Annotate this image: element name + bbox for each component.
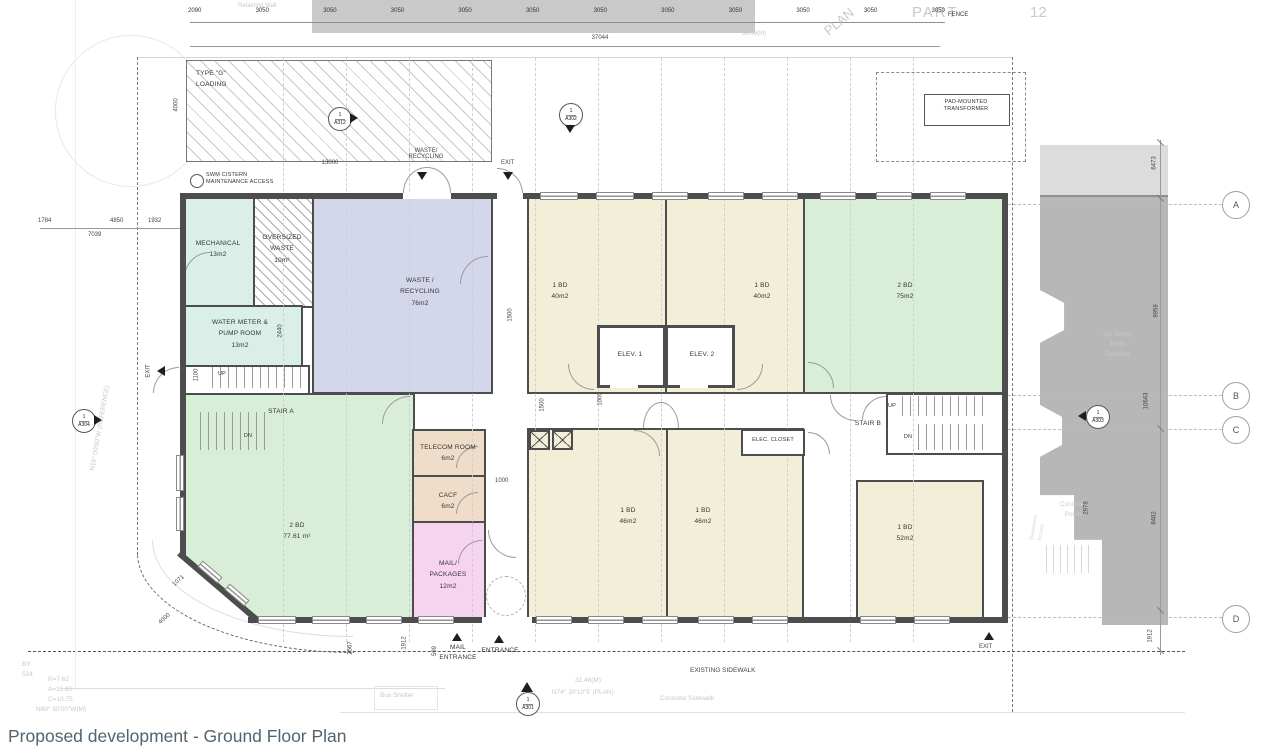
window [876, 192, 912, 200]
label-2bd77: 2 BD 77.61 m² [252, 520, 342, 543]
label-oversized: OVERSIZED WASTE 10m² [251, 232, 313, 266]
window [860, 616, 896, 624]
window [176, 455, 184, 491]
dim: 3050 [594, 8, 607, 14]
dim-bottom-0: 2567 [348, 641, 354, 654]
dim-chamfer-1: 4000 [158, 612, 172, 625]
grid-line [409, 58, 410, 642]
exit-label-bottom: EXIT [979, 644, 992, 650]
dim-corr-2: 1000 [598, 392, 604, 405]
dim: 2090 [188, 8, 201, 14]
dim: 3050 [729, 8, 742, 14]
label-2bd75: 2 BD 75m2 [860, 280, 950, 303]
stair-b-dn: DN [900, 434, 916, 441]
section-marker-a304: 1 A304 [72, 409, 96, 433]
waste-door-label: WASTE/ RECYCLING [398, 148, 454, 160]
dim: 3050 [323, 8, 336, 14]
grid-line [535, 58, 536, 642]
marker-number: 1 [1093, 410, 1104, 418]
survey-bearing-curve: N60° 50'00"W(M) [36, 705, 86, 715]
window [312, 616, 350, 624]
window [820, 192, 856, 200]
dryer-icon [552, 430, 573, 450]
exit-label-left: EXIT [146, 364, 152, 377]
dim-right-1: 9959 [1154, 304, 1160, 317]
grid-bubble-a: A [1222, 191, 1250, 219]
dim-left-3: 7039 [88, 232, 101, 238]
section-arrow-icon [350, 113, 358, 123]
door-arc [427, 167, 451, 193]
dim-right-3: 8482 [1152, 511, 1158, 524]
marker-sheet: A301 [522, 705, 534, 712]
section-arrow-icon [94, 415, 102, 425]
survey-dist-top: 39.09(M) [742, 30, 766, 39]
stair-a-dn: DN [240, 433, 256, 440]
window [258, 616, 296, 624]
property-line-bottom [28, 651, 1185, 652]
entrance-arrow-icon [494, 635, 504, 643]
dim-right-4: 2978 [1084, 501, 1090, 514]
transformer-label: PAD-MOUNTED TRANSFORMER [924, 99, 1008, 113]
dim-stair-w: 1100 [193, 369, 199, 382]
grid-bubble-b: B [1222, 382, 1250, 410]
grid-leader-d [1008, 617, 1222, 618]
exit-arrow-icon [157, 366, 165, 376]
elevator2-door [680, 383, 708, 388]
section-marker-a303: 1 A303 [1086, 405, 1110, 429]
grid-line [787, 58, 788, 642]
dim-bottom-1: 1912 [402, 636, 408, 649]
dim-pump: 2440 [278, 324, 284, 337]
grid-leader-a [1008, 204, 1222, 205]
retaining-wall-band [312, 0, 755, 33]
waste-door-arrow-icon [417, 172, 427, 180]
section-arrow-icon [521, 682, 533, 692]
window [540, 192, 578, 200]
faint-line-1 [75, 0, 76, 690]
existing-building-light [1040, 145, 1168, 195]
window [366, 616, 402, 624]
dim-left-2: 1932 [148, 218, 161, 224]
grid-letter: C [1233, 425, 1240, 435]
marker-number: 1 [335, 112, 346, 120]
marker-number: 1 [79, 414, 90, 422]
label-1bd40a: 1 BD 40m2 [515, 280, 605, 303]
stair-b-treads-lower [918, 424, 984, 450]
section-arrow-icon [1078, 411, 1086, 421]
exit-arrow-icon [984, 632, 994, 640]
mail-entrance-arrow-icon [452, 633, 462, 641]
window [914, 616, 950, 624]
label-1bd52: 1 BD 52m2 [860, 522, 950, 545]
survey-lot12: 12 [1030, 2, 1047, 25]
property-line-left [137, 57, 138, 555]
window [762, 192, 798, 200]
dim-right-0: 6473 [1152, 156, 1158, 169]
elevator-divider-wall [663, 325, 668, 388]
existing-sidewalk-label: EXISTING SIDEWALK [690, 667, 756, 674]
site-line-top [137, 57, 1012, 58]
exit-arrow-icon [503, 172, 513, 180]
dim-loading-height: 4000 [174, 98, 180, 111]
window [588, 616, 624, 624]
grid-letter: A [1233, 200, 1239, 210]
porch-label: Concrete Porch [1048, 500, 1098, 520]
floor-plan-canvas: TYPE "G" LOADING 13000 4000 PAD-MOUNTED … [0, 0, 1280, 756]
grid-leader-b [1008, 395, 1222, 396]
door-arc [403, 167, 427, 193]
window [698, 616, 734, 624]
swm-cistern-label: SWM CISTERN MAINTENANCE ACCESS [206, 172, 296, 186]
dim-left-1: 4850 [110, 218, 123, 224]
survey-concrete-sidewalk: Concrete Sidewalk [660, 694, 714, 704]
stair-a-treads-lower [200, 412, 266, 450]
dwelling-label: 2½ Storey Brick Dwelling [1088, 330, 1148, 359]
elevator2-label: ELEV. 2 [672, 349, 732, 360]
window [652, 192, 688, 200]
dim-right-2: 10643 [1143, 393, 1149, 410]
window [708, 192, 744, 200]
marker-number: 1 [523, 697, 534, 705]
entrance-label: ENTRANCE [470, 645, 530, 656]
survey-curve-data: R=7.62 A=11.93 C=10.75 [48, 675, 73, 704]
section-marker-a312: 1 A312 [328, 107, 352, 131]
survey-by-lot: BY 524 [22, 660, 33, 680]
section-marker-a301: 1 A301 [516, 692, 540, 716]
section-marker-a302: 1 A302 [559, 103, 583, 127]
door-gap-waste [403, 193, 451, 199]
grid-leader-c [1008, 429, 1222, 430]
dim-corr-3: 1000 [495, 478, 508, 484]
basement-access-stairs [1046, 545, 1090, 573]
stair-b-treads-upper [902, 396, 988, 416]
elec-closet-label: ELEC. CLOSET [741, 437, 805, 444]
dim-line-right [1160, 140, 1161, 655]
dim-left-0: 1784 [38, 218, 51, 224]
elevator1-door [610, 383, 638, 388]
label-1bd40b: 1 BD 40m2 [717, 280, 807, 303]
grid-line [850, 58, 851, 642]
basement-access-label: Basement Access [1028, 515, 1049, 542]
stair-a-up: UP [214, 371, 230, 378]
page-title: Proposed development - Ground Floor Plan [8, 726, 347, 747]
exit-label-top: EXIT [501, 160, 514, 166]
loading-zone-label: TYPE "G" LOADING [196, 68, 256, 91]
dim-row-top: 2090 3050 3050 3050 3050 3050 3050 3050 … [188, 8, 945, 14]
grid-letter: D [1233, 614, 1240, 624]
dim: 3050 [391, 8, 404, 14]
section-arrow-icon [565, 125, 575, 133]
dim-loading-width: 13000 [300, 160, 360, 166]
stair-b-up: UP [884, 403, 900, 410]
window [930, 192, 966, 200]
dim: 3050 [661, 8, 674, 14]
dim-corr-1: 1500 [540, 398, 546, 411]
marker-sheet: A304 [78, 422, 90, 429]
label-cacf: CACF 6m2 [403, 490, 493, 513]
dim: 3050 [458, 8, 471, 14]
door-gap-entrance [482, 617, 532, 623]
stair-b-label: STAIR B [846, 418, 890, 429]
window [752, 616, 788, 624]
label-mechanical: MECHANICAL 13m2 [182, 238, 254, 261]
grid-bubble-d: D [1222, 605, 1250, 633]
elevator1-label: ELEV. 1 [600, 349, 660, 360]
label-water-meter: WATER METER & PUMP ROOM 13m2 [190, 317, 290, 351]
stair-a-label: STAIR A [258, 406, 304, 417]
marker-number: 1 [566, 108, 577, 116]
dim: 3050 [932, 8, 945, 14]
label-mail: MAIL/ PACKAGES 12m2 [403, 558, 493, 592]
grid-line [913, 58, 914, 642]
dim-right-5: 1912 [1148, 629, 1154, 642]
dim: 3050 [526, 8, 539, 14]
survey-dist-bottom: 31.46(M) [575, 676, 601, 686]
dim-fence: FENCE [948, 12, 968, 18]
swm-cistern-icon [190, 174, 204, 188]
label-1bd46b: 1 BD 46m2 [658, 505, 748, 528]
grid-bubble-c: C [1222, 416, 1250, 444]
dim-line-total [190, 46, 940, 47]
dim-total: 37044 [560, 35, 640, 41]
window [176, 497, 184, 531]
door-gap-exit-top [497, 193, 523, 199]
label-waste-recycling: WASTE / RECYCLING 76m2 [375, 275, 465, 309]
dim-line-left [40, 228, 180, 229]
wall-right [1002, 193, 1008, 623]
property-line-right [1012, 57, 1013, 712]
survey-bus-shelter: Bus Shelter [380, 691, 414, 701]
dim: 3050 [864, 8, 877, 14]
marker-sheet: A303 [1092, 418, 1104, 425]
room-1bd52 [856, 480, 984, 620]
marker-sheet: A302 [565, 116, 577, 123]
dim-bottom-2: 599 [432, 646, 438, 656]
label-telecom: TELECOM ROOM 6m2 [403, 442, 493, 465]
grid-letter: B [1233, 391, 1239, 401]
sidewalk-edge-2 [340, 712, 1185, 713]
survey-bearing-bottom: N74° 20'10"E (PLAN) [552, 688, 614, 698]
window [418, 616, 454, 624]
washer-icon [529, 430, 550, 450]
grid-line [346, 58, 347, 642]
dim: 3050 [796, 8, 809, 14]
marker-sheet: A312 [334, 120, 346, 127]
window [642, 616, 678, 624]
window [596, 192, 634, 200]
dim-corr-0: 1500 [508, 308, 514, 321]
dim: 3050 [256, 8, 269, 14]
window [536, 616, 572, 624]
